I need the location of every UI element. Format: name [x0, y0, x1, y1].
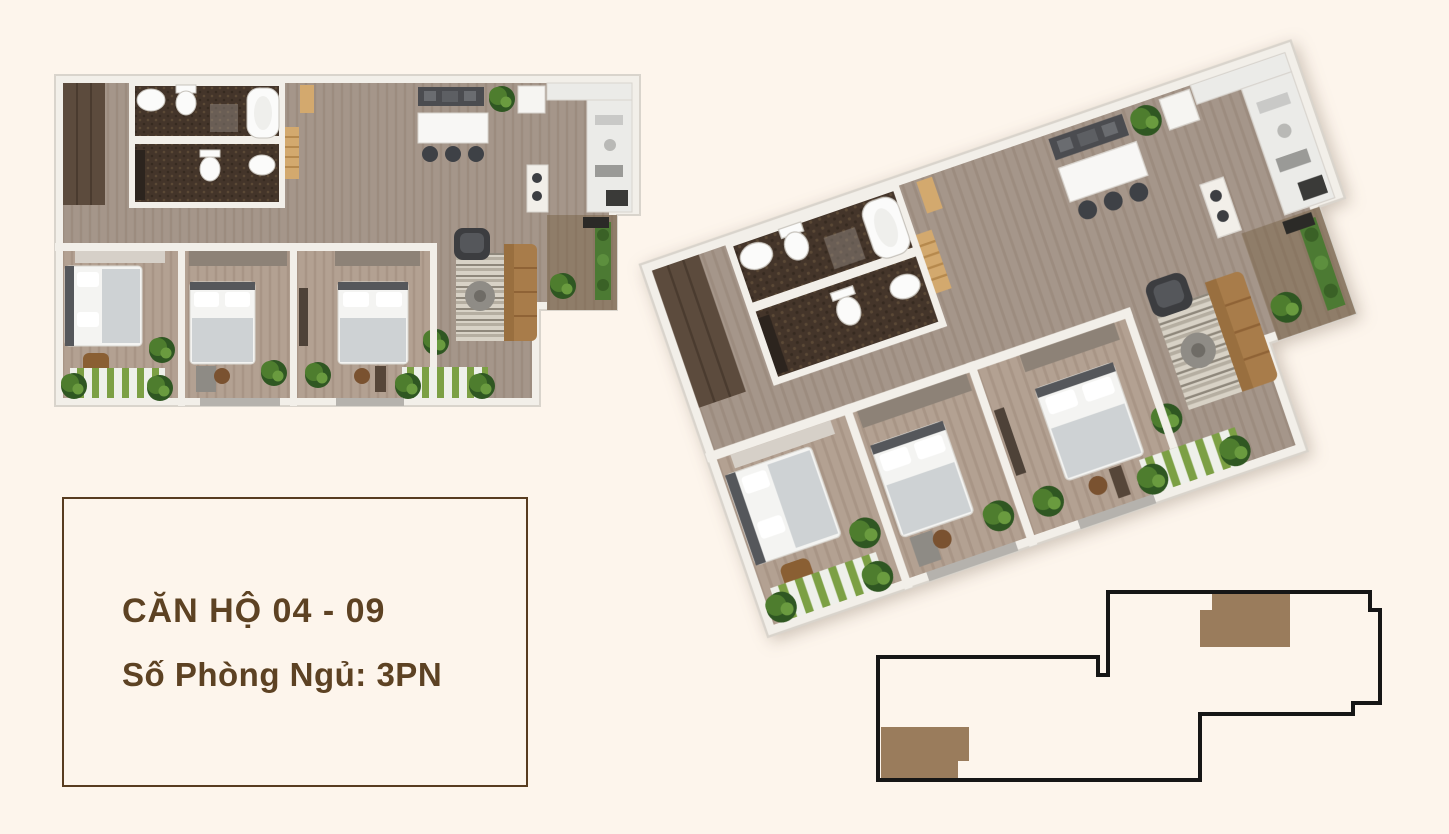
floor-plan-2d-svg — [50, 70, 645, 440]
brochure-canvas: CĂN HỘ 04 - 09 Số Phòng Ngủ: 3PN — [0, 0, 1449, 834]
unit-highlight-04 — [881, 727, 969, 779]
unit-info-card: CĂN HỘ 04 - 09 Số Phòng Ngủ: 3PN — [62, 497, 528, 787]
floor-plan-3d-svg — [632, 33, 1437, 677]
unit-title: CĂN HỘ 04 - 09 — [122, 593, 506, 630]
unit-bedrooms-label: Số Phòng Ngủ: 3PN — [122, 657, 506, 693]
building-locator-diagram — [875, 585, 1385, 785]
floor-plan-3d — [632, 33, 1437, 677]
unit-highlight-09 — [1200, 594, 1290, 647]
floor-plan-2d — [50, 70, 645, 440]
